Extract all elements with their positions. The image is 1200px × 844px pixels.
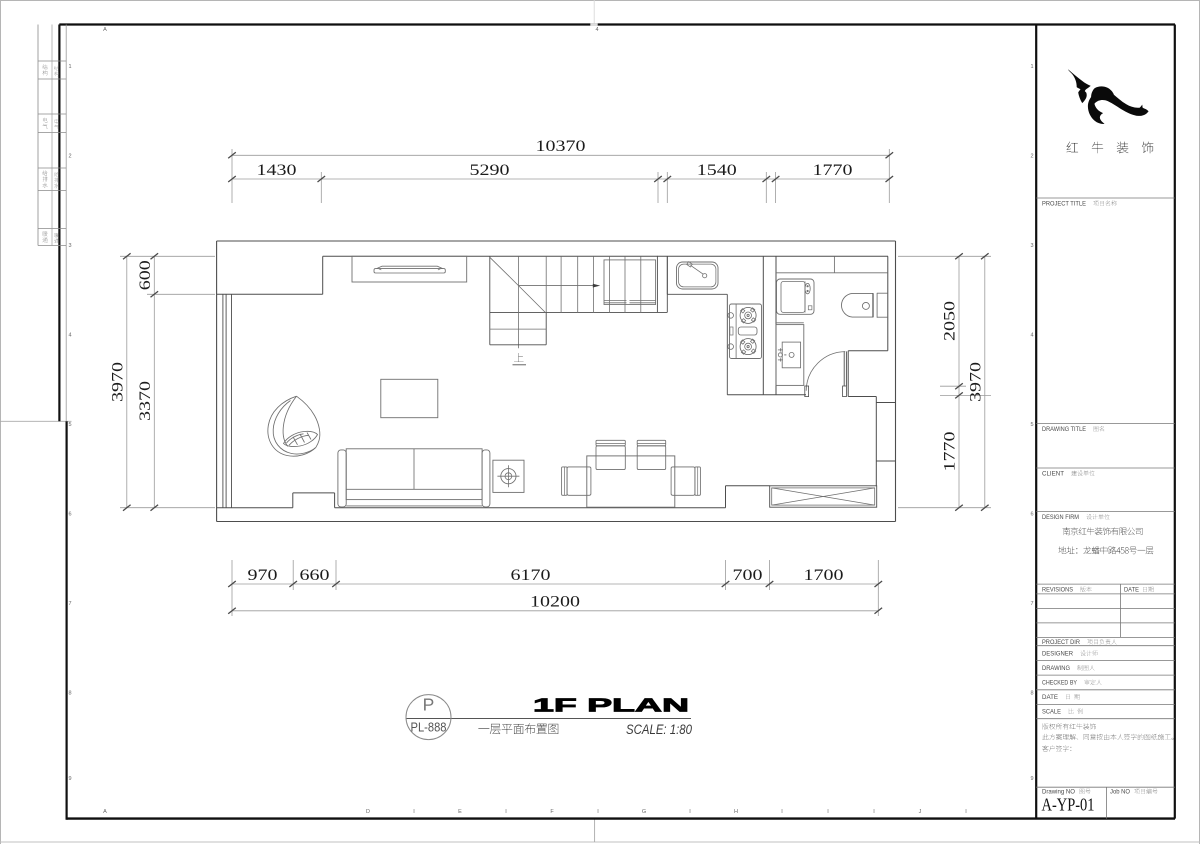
svg-text:A: A: [103, 809, 107, 815]
svg-text:DESIGNER: DESIGNER: [1042, 651, 1074, 658]
svg-text:2: 2: [1030, 154, 1033, 160]
svg-text:1: 1: [1030, 64, 1033, 70]
svg-text:D: D: [366, 809, 370, 815]
svg-text:9: 9: [68, 776, 71, 782]
svg-text:3970: 3970: [110, 362, 127, 402]
svg-text:4: 4: [1030, 333, 1033, 339]
svg-text:4: 4: [68, 333, 71, 339]
svg-text:600: 600: [137, 260, 154, 290]
svg-text:1: 1: [68, 64, 71, 70]
svg-text:G: G: [642, 809, 646, 815]
svg-text:SCALE: 1:80: SCALE: 1:80: [626, 722, 692, 737]
svg-text:PROJECT DIR: PROJECT DIR: [1042, 639, 1080, 646]
svg-text:DESIGN FIRM: DESIGN FIRM: [1042, 514, 1079, 521]
svg-text:8: 8: [68, 691, 71, 697]
svg-text:10200: 10200: [530, 594, 580, 611]
svg-text:5: 5: [68, 422, 71, 428]
svg-text:3: 3: [68, 243, 71, 249]
svg-text:700: 700: [733, 567, 763, 584]
svg-text:CLIENT: CLIENT: [1042, 471, 1064, 478]
svg-text:3: 3: [1030, 243, 1033, 249]
svg-text:4: 4: [595, 27, 598, 33]
svg-text:7: 7: [68, 601, 71, 607]
svg-text:H: H: [734, 809, 738, 815]
svg-text:1700: 1700: [804, 567, 844, 584]
svg-text:DRAWING: DRAWING: [1042, 665, 1070, 672]
svg-text:P: P: [423, 695, 435, 715]
svg-text:DRAWING TITLE: DRAWING TITLE: [1042, 426, 1086, 433]
svg-text:A-YP-01: A-YP-01: [1042, 795, 1095, 815]
svg-text:660: 660: [300, 567, 330, 584]
svg-text:3370: 3370: [137, 381, 154, 421]
svg-text:2050: 2050: [942, 301, 959, 341]
svg-text:PROJECT TITLE: PROJECT TITLE: [1042, 201, 1086, 208]
svg-text:7: 7: [1030, 601, 1033, 607]
svg-text:6: 6: [1030, 512, 1033, 518]
svg-text:1770: 1770: [813, 162, 853, 179]
svg-text:REVISIONS: REVISIONS: [1042, 587, 1073, 594]
svg-text:9: 9: [1030, 776, 1033, 782]
svg-text:2: 2: [68, 154, 71, 160]
svg-text:1430: 1430: [257, 162, 297, 179]
svg-text:5: 5: [1030, 422, 1033, 428]
svg-text:10370: 10370: [536, 138, 586, 155]
svg-text:1770: 1770: [942, 432, 959, 472]
svg-text:DATE: DATE: [1124, 587, 1139, 594]
svg-text:970: 970: [248, 567, 278, 584]
svg-text:Job NO: Job NO: [1110, 789, 1130, 796]
svg-text:DATE: DATE: [1042, 694, 1058, 701]
svg-text:1540: 1540: [697, 162, 737, 179]
svg-text:CHECKED BY: CHECKED BY: [1042, 680, 1077, 687]
svg-text:1F PLAN: 1F PLAN: [533, 695, 689, 716]
svg-text:5290: 5290: [470, 162, 510, 179]
svg-text:8: 8: [1030, 691, 1033, 697]
svg-text:J: J: [919, 809, 922, 815]
svg-text:SCALE: SCALE: [1042, 709, 1061, 716]
svg-text:6170: 6170: [511, 567, 551, 584]
svg-text:PL-888: PL-888: [411, 721, 447, 735]
svg-text:6: 6: [68, 512, 71, 518]
svg-text:E: E: [458, 809, 462, 815]
svg-text:3970: 3970: [967, 362, 984, 402]
svg-text:A: A: [103, 27, 107, 33]
